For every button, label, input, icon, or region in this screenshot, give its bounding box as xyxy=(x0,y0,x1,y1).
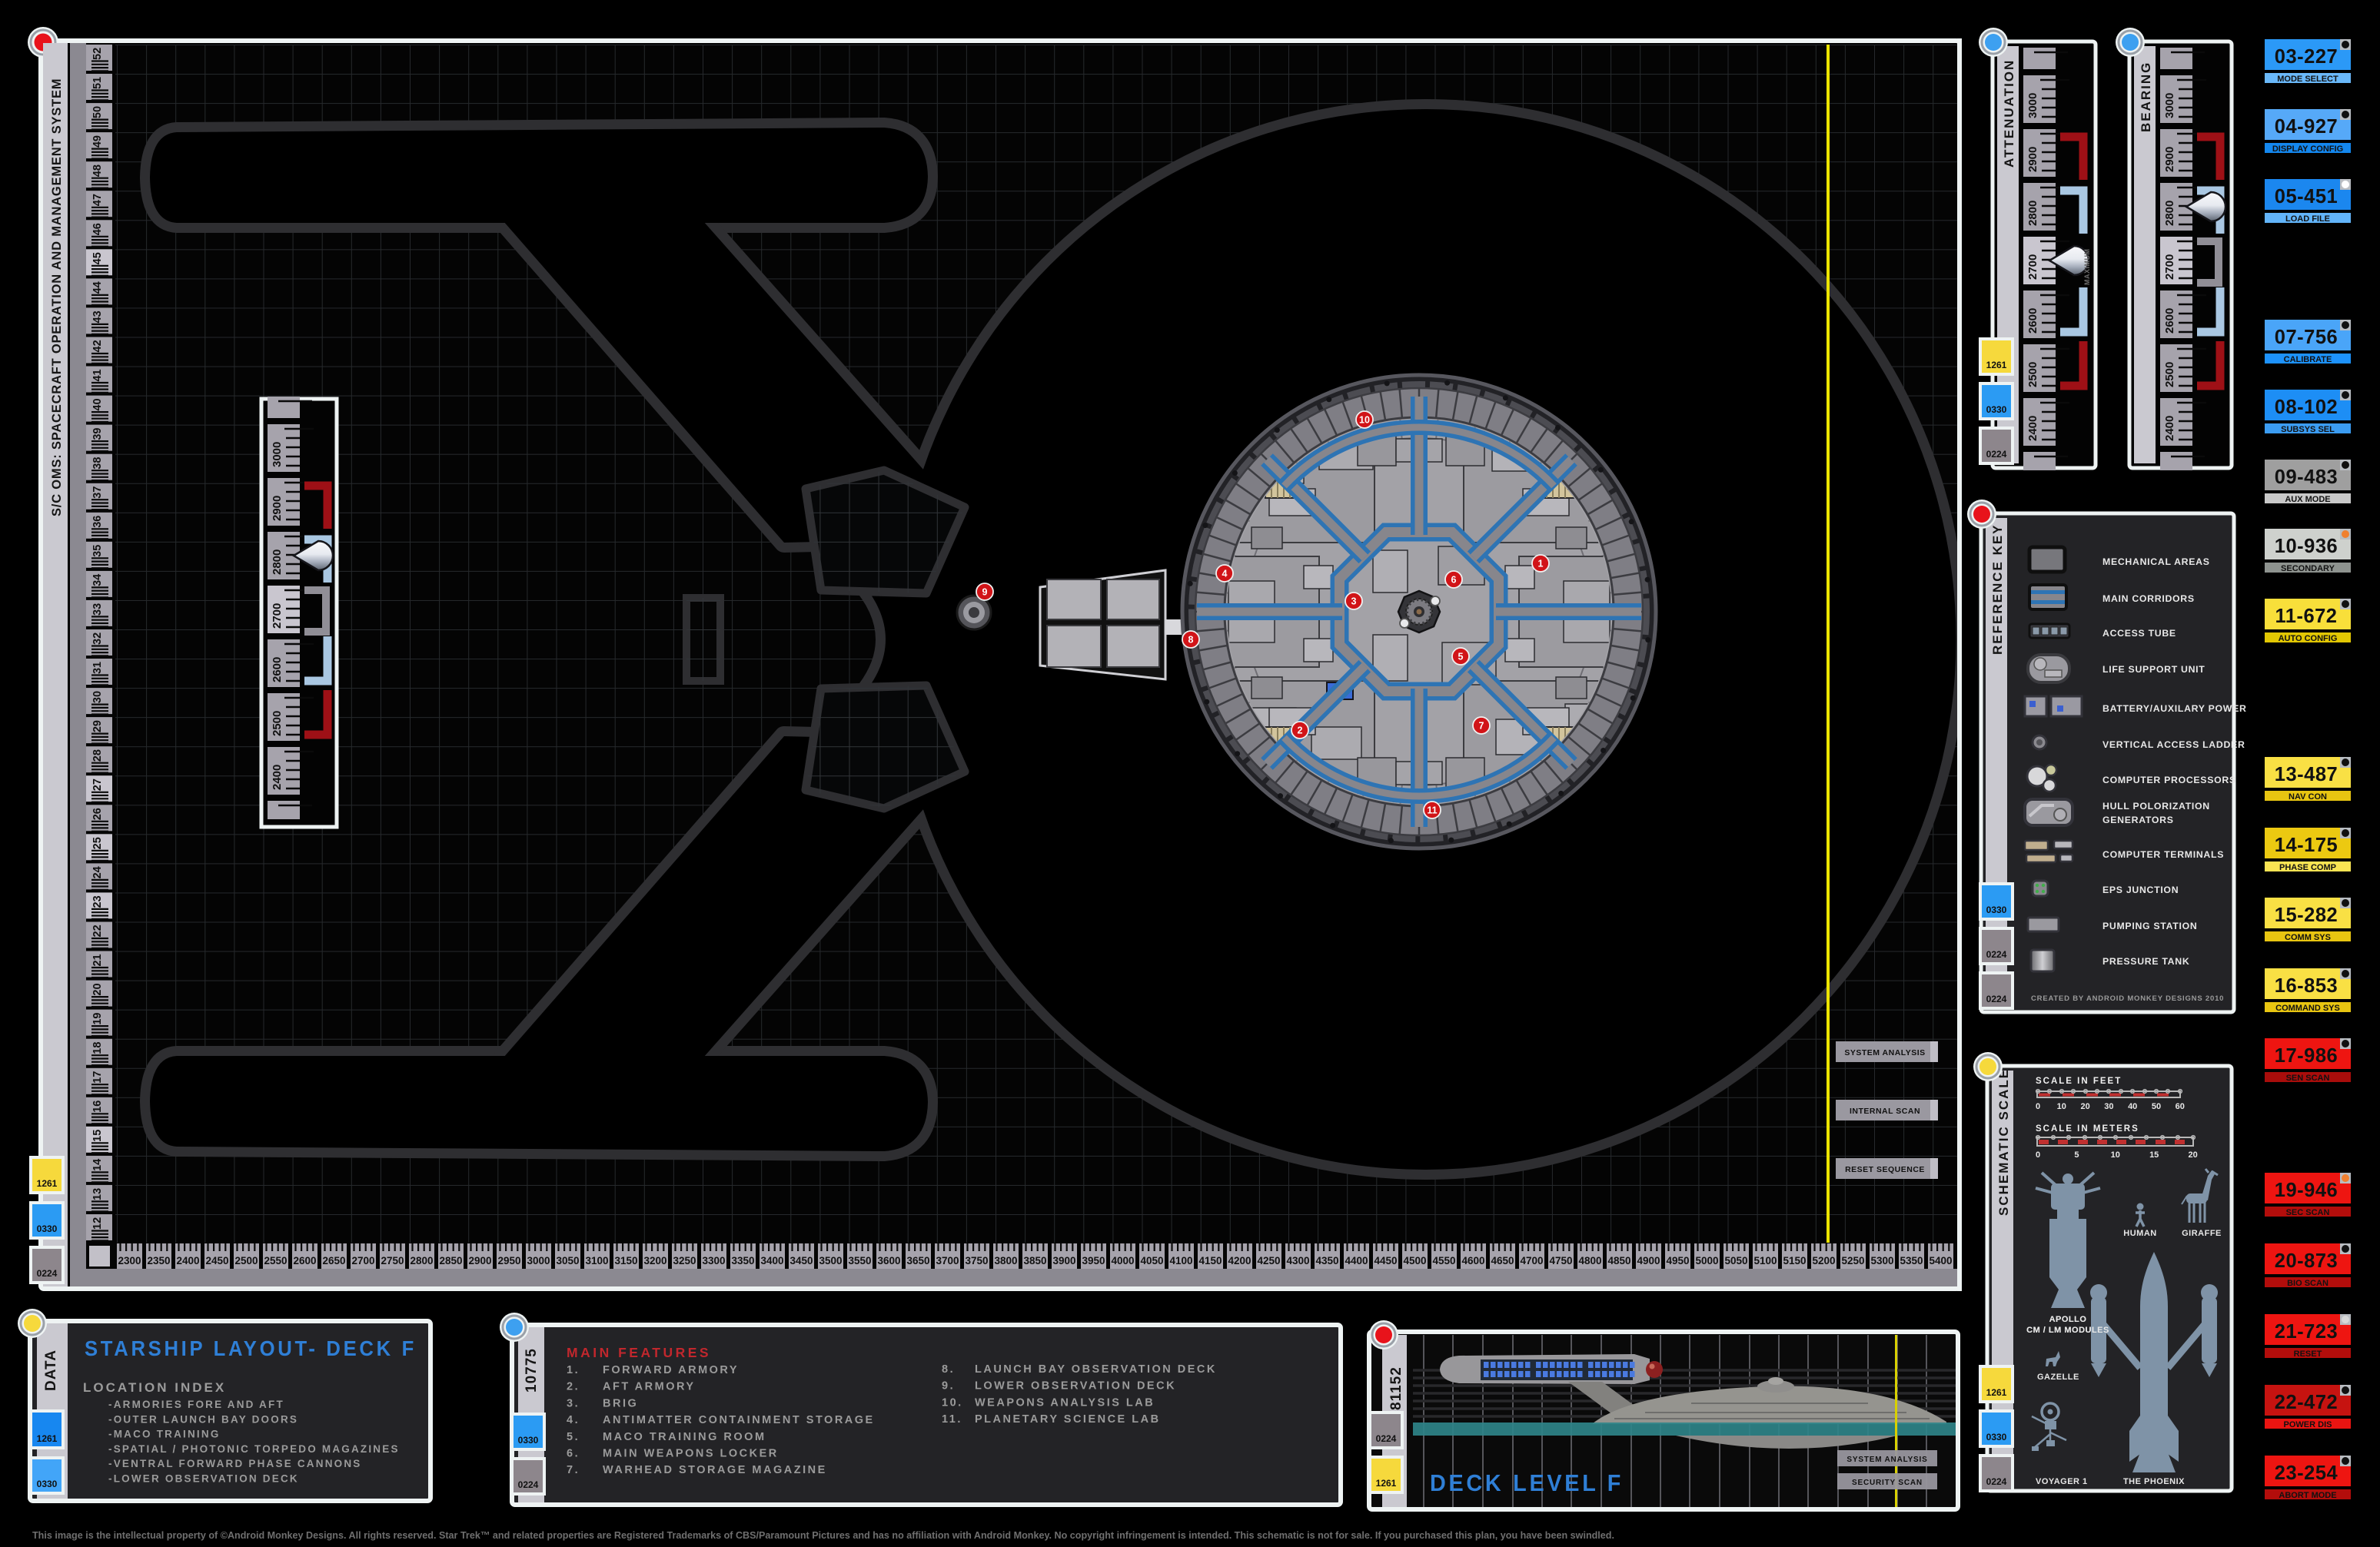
svg-text:46: 46 xyxy=(91,223,104,235)
svg-text:4700: 4700 xyxy=(1520,1255,1543,1266)
svg-text:2600: 2600 xyxy=(2026,308,2039,334)
svg-text:3200: 3200 xyxy=(643,1255,666,1266)
svg-text:4000: 4000 xyxy=(1111,1255,1134,1266)
svg-text:5300: 5300 xyxy=(1870,1255,1893,1266)
svg-text:36: 36 xyxy=(91,516,104,528)
svg-text:10: 10 xyxy=(2111,1150,2120,1160)
svg-text:0: 0 xyxy=(2036,1102,2040,1111)
svg-text:48: 48 xyxy=(91,164,104,177)
svg-text:2.: 2. xyxy=(567,1381,580,1393)
svg-text:2700: 2700 xyxy=(2163,254,2176,280)
svg-text:2: 2 xyxy=(1298,725,1303,736)
svg-text:SECONDARY: SECONDARY xyxy=(2281,564,2335,573)
svg-text:18: 18 xyxy=(91,1042,104,1054)
svg-text:PLANETARY SCIENCE LAB: PLANETARY SCIENCE LAB xyxy=(975,1413,1161,1426)
svg-text:27: 27 xyxy=(91,778,104,791)
svg-text:LAUNCH BAY OBSERVATION DECK: LAUNCH BAY OBSERVATION DECK xyxy=(975,1363,1217,1376)
svg-text:3900: 3900 xyxy=(1052,1255,1075,1266)
svg-text:4900: 4900 xyxy=(1637,1255,1660,1266)
svg-text:4750: 4750 xyxy=(1549,1255,1572,1266)
svg-text:THE PHOENIX: THE PHOENIX xyxy=(2123,1477,2185,1486)
svg-text:POWER DIS: POWER DIS xyxy=(2284,1420,2332,1429)
svg-text:09-483: 09-483 xyxy=(2275,466,2338,488)
svg-text:5: 5 xyxy=(1458,652,1464,662)
svg-text:3700: 3700 xyxy=(936,1255,959,1266)
svg-text:4050: 4050 xyxy=(1140,1255,1163,1266)
svg-text:2400: 2400 xyxy=(2026,416,2039,441)
svg-text:04-927: 04-927 xyxy=(2275,116,2338,138)
svg-text:42: 42 xyxy=(91,340,104,352)
svg-text:3050: 3050 xyxy=(556,1255,579,1266)
svg-text:10: 10 xyxy=(2057,1102,2066,1111)
svg-text:6: 6 xyxy=(1451,575,1457,586)
svg-text:24: 24 xyxy=(91,866,104,878)
svg-text:4350: 4350 xyxy=(1315,1255,1338,1266)
svg-text:4400: 4400 xyxy=(1345,1255,1368,1266)
svg-text:AUX MODE: AUX MODE xyxy=(2285,495,2330,504)
svg-text:2900: 2900 xyxy=(2163,147,2176,172)
svg-text:SYSTEM ANALYSIS: SYSTEM ANALYSIS xyxy=(1844,1048,1925,1057)
svg-text:LOWER OBSERVATION DECK: LOWER OBSERVATION DECK xyxy=(975,1380,1176,1393)
svg-text:LIFE SUPPORT UNIT: LIFE SUPPORT UNIT xyxy=(2102,664,2205,675)
svg-text:11: 11 xyxy=(1427,805,1437,816)
svg-text:3600: 3600 xyxy=(877,1255,900,1266)
svg-text:3800: 3800 xyxy=(994,1255,1017,1266)
svg-text:AUTO CONFIG: AUTO CONFIG xyxy=(2279,634,2338,643)
svg-text:MAIN CORRIDORS: MAIN CORRIDORS xyxy=(2102,593,2195,604)
svg-text:3000: 3000 xyxy=(271,442,284,467)
svg-text:5200: 5200 xyxy=(1812,1255,1835,1266)
svg-text:5: 5 xyxy=(2074,1150,2079,1160)
svg-text:HUMAN: HUMAN xyxy=(2123,1229,2156,1238)
svg-text:2300: 2300 xyxy=(118,1255,141,1266)
svg-text:07-756: 07-756 xyxy=(2275,327,2338,348)
svg-text:25: 25 xyxy=(91,837,104,849)
svg-text:COMPUTER PROCESSORS: COMPUTER PROCESSORS xyxy=(2102,775,2236,785)
svg-text:0224: 0224 xyxy=(518,1479,539,1490)
svg-text:19-946: 19-946 xyxy=(2275,1180,2338,1201)
svg-text:14-175: 14-175 xyxy=(2275,835,2338,856)
svg-text:2800: 2800 xyxy=(271,549,284,575)
svg-text:16-853: 16-853 xyxy=(2275,975,2338,997)
svg-text:08-102: 08-102 xyxy=(2275,397,2338,418)
svg-text:0330: 0330 xyxy=(1986,404,2007,415)
svg-text:15-282: 15-282 xyxy=(2275,905,2338,926)
svg-text:SCHEMATIC SCALE: SCHEMATIC SCALE xyxy=(1996,1068,2011,1216)
svg-text:2700: 2700 xyxy=(2026,254,2039,280)
svg-text:4100: 4100 xyxy=(1169,1255,1192,1266)
svg-text:0224: 0224 xyxy=(1986,949,2007,960)
svg-text:49: 49 xyxy=(91,135,104,148)
svg-text:1: 1 xyxy=(1538,559,1544,569)
svg-text:1261: 1261 xyxy=(37,1433,58,1444)
svg-text:HULL POLORIZATION: HULL POLORIZATION xyxy=(2102,801,2210,812)
svg-text:0224: 0224 xyxy=(1986,994,2007,1004)
svg-text:DATA: DATA xyxy=(43,1349,59,1391)
svg-text:PHASE COMP: PHASE COMP xyxy=(2279,863,2336,872)
svg-text:29: 29 xyxy=(91,720,104,732)
svg-text:10: 10 xyxy=(1359,415,1370,426)
svg-text:4500: 4500 xyxy=(1403,1255,1426,1266)
svg-text:20: 20 xyxy=(2188,1150,2197,1160)
svg-text:LOCATION INDEX: LOCATION INDEX xyxy=(83,1380,226,1395)
svg-text:4200: 4200 xyxy=(1228,1255,1251,1266)
svg-text:1261: 1261 xyxy=(1986,360,2007,370)
svg-text:LOAD FILE: LOAD FILE xyxy=(2285,214,2330,224)
svg-text:14: 14 xyxy=(91,1159,104,1171)
svg-text:2500: 2500 xyxy=(271,711,284,736)
svg-text:DISPLAY CONFIG: DISPLAY CONFIG xyxy=(2272,144,2343,154)
svg-text:0: 0 xyxy=(2036,1150,2040,1160)
svg-text:3000: 3000 xyxy=(2026,93,2039,118)
svg-text:0224: 0224 xyxy=(1986,449,2007,460)
svg-text:GENERATORS: GENERATORS xyxy=(2102,815,2174,825)
svg-text:VOYAGER 1: VOYAGER 1 xyxy=(2036,1477,2088,1486)
svg-text:2800: 2800 xyxy=(2026,201,2039,226)
svg-text:19: 19 xyxy=(91,1013,104,1025)
svg-text:30: 30 xyxy=(91,691,104,703)
svg-text:1.: 1. xyxy=(567,1364,580,1376)
svg-text:APOLLO: APOLLO xyxy=(2049,1315,2087,1324)
svg-text:ACCESS TUBE: ACCESS TUBE xyxy=(2102,628,2176,639)
svg-text:0330: 0330 xyxy=(37,1479,58,1489)
svg-text:20: 20 xyxy=(91,983,104,995)
svg-text:COMM SYS: COMM SYS xyxy=(2285,933,2331,942)
svg-text:0330: 0330 xyxy=(37,1223,58,1234)
svg-text:INTERNAL SCAN: INTERNAL SCAN xyxy=(1850,1107,1920,1116)
svg-text:0224: 0224 xyxy=(37,1268,58,1279)
svg-text:28: 28 xyxy=(91,749,104,762)
svg-text:30: 30 xyxy=(2104,1102,2113,1111)
svg-text:1261: 1261 xyxy=(1376,1478,1397,1489)
svg-text:3250: 3250 xyxy=(673,1255,696,1266)
svg-text:NAV CON: NAV CON xyxy=(2289,792,2327,802)
svg-text:SCALE IN FEET: SCALE IN FEET xyxy=(2036,1077,2122,1086)
svg-text:3650: 3650 xyxy=(906,1255,929,1266)
svg-text:39: 39 xyxy=(91,428,104,440)
svg-text:2900: 2900 xyxy=(271,496,284,521)
svg-text:BIO SCAN: BIO SCAN xyxy=(2287,1279,2328,1288)
svg-text:7.: 7. xyxy=(567,1464,580,1476)
svg-text:5050: 5050 xyxy=(1724,1255,1747,1266)
svg-text:4950: 4950 xyxy=(1666,1255,1689,1266)
svg-text:4.: 4. xyxy=(567,1414,580,1426)
svg-text:21-723: 21-723 xyxy=(2275,1321,2338,1343)
svg-text:SEN SCAN: SEN SCAN xyxy=(2286,1074,2330,1083)
svg-text:2500: 2500 xyxy=(234,1255,258,1266)
svg-text:23-254: 23-254 xyxy=(2275,1462,2338,1484)
svg-text:ANTIMATTER CONTAINMENT STORAGE: ANTIMATTER CONTAINMENT STORAGE xyxy=(603,1414,875,1426)
svg-text:2900: 2900 xyxy=(468,1255,491,1266)
svg-text:33: 33 xyxy=(91,603,104,616)
svg-text:03-227: 03-227 xyxy=(2275,46,2338,68)
svg-text:MAXIMUM: MAXIMUM xyxy=(2083,249,2091,286)
svg-text:This image is the intellectual: This image is the intellectual property … xyxy=(32,1529,1614,1541)
svg-text:4650: 4650 xyxy=(1491,1255,1514,1266)
svg-text:4850: 4850 xyxy=(1607,1255,1630,1266)
svg-text:BRIG: BRIG xyxy=(603,1397,638,1409)
svg-text:3300: 3300 xyxy=(702,1255,725,1266)
svg-text:3500: 3500 xyxy=(819,1255,842,1266)
svg-text:2750: 2750 xyxy=(381,1255,404,1266)
svg-text:CREATED BY ANDROID MONKEY DESI: CREATED BY ANDROID MONKEY DESIGNS 2010 xyxy=(2031,994,2224,1003)
svg-text:15: 15 xyxy=(91,1130,104,1142)
svg-text:4: 4 xyxy=(1222,569,1228,579)
svg-text:2400: 2400 xyxy=(271,765,284,790)
svg-text:10.: 10. xyxy=(942,1396,963,1409)
svg-text:SYSTEM ANALYSIS: SYSTEM ANALYSIS xyxy=(1846,1456,1927,1464)
svg-text:-MACO TRAINING: -MACO TRAINING xyxy=(108,1429,221,1440)
svg-text:2600: 2600 xyxy=(293,1255,316,1266)
svg-text:REFERENCE KEY: REFERENCE KEY xyxy=(1990,523,2005,655)
svg-text:26: 26 xyxy=(91,808,104,820)
svg-text:8.: 8. xyxy=(942,1363,955,1376)
svg-text:2700: 2700 xyxy=(271,603,284,629)
svg-text:9: 9 xyxy=(982,587,988,598)
svg-text:COMMAND SYS: COMMAND SYS xyxy=(2275,1004,2340,1013)
svg-text:35: 35 xyxy=(91,545,104,557)
svg-text:SECURITY SCAN: SECURITY SCAN xyxy=(1852,1479,1923,1487)
svg-text:2900: 2900 xyxy=(2026,147,2039,172)
svg-text:3450: 3450 xyxy=(789,1255,813,1266)
svg-text:15: 15 xyxy=(2149,1150,2159,1160)
svg-text:40: 40 xyxy=(2128,1102,2137,1111)
svg-text:2500: 2500 xyxy=(2026,362,2039,387)
svg-text:4300: 4300 xyxy=(1286,1255,1309,1266)
svg-text:-ARMORIES FORE AND AFT: -ARMORIES FORE AND AFT xyxy=(108,1399,284,1410)
svg-text:10775: 10775 xyxy=(524,1348,540,1393)
svg-text:37: 37 xyxy=(91,486,104,499)
svg-text:11.: 11. xyxy=(942,1413,962,1426)
svg-text:PRESSURE TANK: PRESSURE TANK xyxy=(2102,956,2189,967)
svg-text:DECK LEVEL F: DECK LEVEL F xyxy=(1430,1469,1624,1496)
svg-text:52: 52 xyxy=(91,48,104,60)
svg-text:3750: 3750 xyxy=(965,1255,988,1266)
svg-text:05-451: 05-451 xyxy=(2275,186,2338,207)
svg-text:-VENTRAL FORWARD PHASE CANNONS: -VENTRAL FORWARD PHASE CANNONS xyxy=(108,1458,362,1469)
svg-text:MODE SELECT: MODE SELECT xyxy=(2277,75,2338,84)
svg-text:2800: 2800 xyxy=(2163,201,2176,226)
svg-text:5000: 5000 xyxy=(1695,1255,1718,1266)
svg-text:60: 60 xyxy=(2176,1102,2185,1111)
svg-text:5100: 5100 xyxy=(1753,1255,1777,1266)
svg-text:4250: 4250 xyxy=(1257,1255,1280,1266)
svg-text:20: 20 xyxy=(2080,1102,2089,1111)
svg-text:4800: 4800 xyxy=(1578,1255,1601,1266)
svg-text:4600: 4600 xyxy=(1461,1255,1484,1266)
svg-text:3850: 3850 xyxy=(1023,1255,1046,1266)
svg-text:7: 7 xyxy=(1479,721,1484,732)
svg-text:3400: 3400 xyxy=(760,1255,783,1266)
svg-text:SCALE IN METERS: SCALE IN METERS xyxy=(2036,1124,2139,1134)
svg-text:GAZELLE: GAZELLE xyxy=(2037,1373,2079,1382)
svg-text:CALIBRATE: CALIBRATE xyxy=(2284,355,2332,364)
svg-text:2800: 2800 xyxy=(410,1255,433,1266)
svg-text:16: 16 xyxy=(91,1100,104,1113)
svg-text:51: 51 xyxy=(91,77,104,89)
svg-text:81152: 81152 xyxy=(1388,1366,1404,1410)
svg-text:-SPATIAL / PHOTONIC TORPEDO MA: -SPATIAL / PHOTONIC TORPEDO MAGAZINES xyxy=(108,1443,400,1455)
svg-text:2500: 2500 xyxy=(2163,362,2176,387)
svg-text:RESET SEQUENCE: RESET SEQUENCE xyxy=(1845,1165,1925,1174)
svg-text:5.: 5. xyxy=(567,1431,580,1443)
svg-text:ATTENUATION: ATTENUATION xyxy=(2002,59,2016,168)
svg-text:13-487: 13-487 xyxy=(2275,764,2338,785)
svg-text:3100: 3100 xyxy=(585,1255,608,1266)
svg-text:AFT ARMORY: AFT ARMORY xyxy=(603,1381,696,1393)
svg-text:0330: 0330 xyxy=(1986,1432,2007,1442)
svg-text:21: 21 xyxy=(91,954,104,966)
svg-text:6.: 6. xyxy=(567,1448,580,1460)
svg-text:2600: 2600 xyxy=(2163,308,2176,334)
svg-text:43: 43 xyxy=(91,310,104,323)
svg-text:VERTICAL ACCESS LADDER: VERTICAL ACCESS LADDER xyxy=(2102,739,2245,750)
svg-text:-LOWER OBSERVATION DECK: -LOWER OBSERVATION DECK xyxy=(108,1473,299,1485)
svg-text:9.: 9. xyxy=(942,1380,955,1393)
svg-text:PUMPING STATION: PUMPING STATION xyxy=(2102,921,2197,931)
svg-text:ABORT MODE: ABORT MODE xyxy=(2279,1491,2336,1500)
svg-text:GIRAFFE: GIRAFFE xyxy=(2182,1229,2222,1238)
svg-text:0330: 0330 xyxy=(1986,905,2007,915)
svg-text:50: 50 xyxy=(2152,1102,2161,1111)
svg-text:45: 45 xyxy=(91,252,104,264)
svg-text:2850: 2850 xyxy=(439,1255,462,1266)
svg-text:5350: 5350 xyxy=(1900,1255,1923,1266)
svg-text:MAIN WEAPONS LOCKER: MAIN WEAPONS LOCKER xyxy=(603,1448,779,1460)
svg-text:34: 34 xyxy=(91,574,104,586)
svg-text:32: 32 xyxy=(91,632,104,645)
svg-text:22: 22 xyxy=(91,925,104,937)
svg-text:3: 3 xyxy=(1351,596,1357,607)
svg-text:WEAPONS ANALYSIS LAB: WEAPONS ANALYSIS LAB xyxy=(975,1396,1155,1409)
svg-text:40: 40 xyxy=(91,398,104,410)
svg-text:MACO TRAINING ROOM: MACO TRAINING ROOM xyxy=(603,1431,766,1443)
svg-text:3000: 3000 xyxy=(2163,93,2176,118)
svg-text:-OUTER LAUNCH BAY DOORS: -OUTER LAUNCH BAY DOORS xyxy=(108,1413,298,1425)
svg-text:MECHANICAL AREAS: MECHANICAL AREAS xyxy=(2102,556,2210,567)
svg-text:22-472: 22-472 xyxy=(2275,1392,2338,1413)
svg-text:0224: 0224 xyxy=(1986,1476,2007,1487)
svg-text:12: 12 xyxy=(91,1217,104,1230)
svg-text:4550: 4550 xyxy=(1432,1255,1455,1266)
svg-text:3000: 3000 xyxy=(527,1255,550,1266)
svg-text:2350: 2350 xyxy=(147,1255,170,1266)
svg-text:5250: 5250 xyxy=(1841,1255,1864,1266)
svg-text:EPS JUNCTION: EPS JUNCTION xyxy=(2102,885,2179,895)
svg-text:17-986: 17-986 xyxy=(2275,1045,2338,1067)
svg-text:2400: 2400 xyxy=(2163,416,2176,441)
svg-text:S/C OMS: SPACECRAFT OPERATION: S/C OMS: SPACECRAFT OPERATION AND MANAGE… xyxy=(50,78,64,516)
svg-text:4450: 4450 xyxy=(1374,1255,1397,1266)
svg-text:5400: 5400 xyxy=(1929,1255,1952,1266)
svg-text:3150: 3150 xyxy=(614,1255,637,1266)
svg-text:11-672: 11-672 xyxy=(2275,606,2338,627)
svg-text:10-936: 10-936 xyxy=(2275,536,2338,557)
svg-text:3950: 3950 xyxy=(1082,1255,1105,1266)
svg-text:BATTERY/AUXILARY POWER: BATTERY/AUXILARY POWER xyxy=(2102,703,2247,714)
svg-text:0330: 0330 xyxy=(518,1435,539,1446)
svg-text:COMPUTER TERMINALS: COMPUTER TERMINALS xyxy=(2102,849,2224,860)
svg-text:STARSHIP LAYOUT- DECK F: STARSHIP LAYOUT- DECK F xyxy=(85,1336,417,1360)
svg-text:MAIN FEATURES: MAIN FEATURES xyxy=(567,1345,711,1360)
svg-text:8: 8 xyxy=(1188,635,1194,646)
svg-text:BEARING: BEARING xyxy=(2139,61,2153,132)
svg-text:44: 44 xyxy=(91,281,104,294)
svg-text:3550: 3550 xyxy=(848,1255,871,1266)
svg-text:2700: 2700 xyxy=(351,1255,374,1266)
svg-text:20-873: 20-873 xyxy=(2275,1250,2338,1272)
svg-text:FORWARD ARMORY: FORWARD ARMORY xyxy=(603,1364,739,1376)
svg-text:4150: 4150 xyxy=(1198,1255,1222,1266)
svg-text:17: 17 xyxy=(91,1071,104,1084)
svg-text:WARHEAD STORAGE MAGAZINE: WARHEAD STORAGE MAGAZINE xyxy=(603,1464,827,1476)
svg-text:3350: 3350 xyxy=(731,1255,754,1266)
svg-text:2550: 2550 xyxy=(264,1255,287,1266)
svg-text:47: 47 xyxy=(91,194,104,206)
svg-text:41: 41 xyxy=(91,369,104,381)
svg-text:50: 50 xyxy=(91,106,104,118)
svg-text:2600: 2600 xyxy=(271,657,284,682)
svg-text:3.: 3. xyxy=(567,1397,580,1409)
svg-text:SEC SCAN: SEC SCAN xyxy=(2286,1208,2330,1217)
svg-text:2950: 2950 xyxy=(497,1255,520,1266)
svg-text:0224: 0224 xyxy=(1376,1433,1397,1444)
svg-text:CM / LM MODULES: CM / LM MODULES xyxy=(2026,1326,2109,1335)
svg-text:2400: 2400 xyxy=(176,1255,199,1266)
svg-text:31: 31 xyxy=(91,662,104,674)
svg-text:5150: 5150 xyxy=(1783,1255,1806,1266)
svg-text:SUBSYS SEL: SUBSYS SEL xyxy=(2281,425,2335,434)
svg-text:RESET: RESET xyxy=(2294,1349,2322,1359)
svg-text:38: 38 xyxy=(91,457,104,470)
svg-text:1261: 1261 xyxy=(37,1178,58,1189)
svg-text:1261: 1261 xyxy=(1986,1387,2007,1398)
svg-text:2450: 2450 xyxy=(205,1255,228,1266)
svg-text:13: 13 xyxy=(91,1188,104,1200)
svg-text:23: 23 xyxy=(91,895,104,908)
svg-text:2650: 2650 xyxy=(322,1255,345,1266)
